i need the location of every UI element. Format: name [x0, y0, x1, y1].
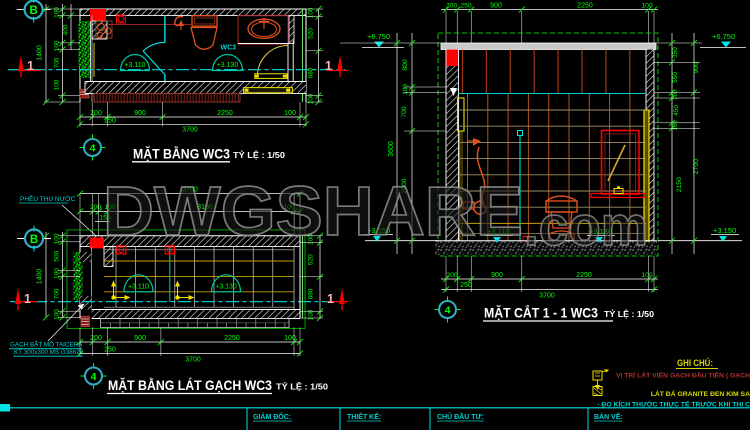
- svg-text:1: 1: [27, 59, 34, 73]
- svg-text:1: 1: [24, 292, 31, 306]
- svg-text:250: 250: [104, 117, 116, 124]
- svg-text:KT 300x300 MS G38628: KT 300x300 MS G38628: [14, 349, 84, 356]
- svg-text:100: 100: [54, 309, 61, 320]
- svg-text:+6.750: +6.750: [367, 32, 390, 41]
- svg-text:900: 900: [490, 3, 502, 10]
- svg-text:700: 700: [54, 57, 61, 68]
- svg-text:MẶT BẰNG LÁT GẠCH WC3: MẶT BẰNG LÁT GẠCH WC3: [108, 378, 272, 393]
- svg-text:+3.130: +3.130: [217, 62, 239, 69]
- svg-text:MẶT BẰNG WC3: MẶT BẰNG WC3: [133, 145, 230, 162]
- svg-text:200: 200: [90, 110, 102, 117]
- svg-text:900: 900: [491, 272, 503, 279]
- svg-text:TỶ LỆ : 1/50: TỶ LỆ : 1/50: [276, 381, 328, 392]
- svg-text:900: 900: [134, 110, 146, 117]
- svg-text:1400: 1400: [37, 269, 44, 285]
- svg-text:200: 200: [446, 272, 458, 279]
- svg-text:900: 900: [134, 335, 146, 342]
- svg-text:3700: 3700: [539, 293, 555, 300]
- svg-text:+6.750: +6.750: [712, 32, 735, 41]
- svg-text:200: 200: [90, 204, 102, 211]
- svg-text:700: 700: [54, 288, 61, 299]
- svg-text:DWGSHARE: DWGSHARE: [103, 172, 523, 250]
- svg-text:100: 100: [54, 7, 61, 18]
- svg-text:+3.110: +3.110: [128, 283, 149, 290]
- svg-text:+3.130: +3.130: [215, 283, 237, 290]
- svg-text:680: 680: [308, 67, 315, 78]
- svg-text:100: 100: [673, 89, 679, 100]
- svg-text:200: 200: [90, 335, 102, 342]
- svg-text:1400: 1400: [37, 45, 44, 61]
- svg-text:4: 4: [90, 143, 96, 155]
- svg-text:450: 450: [673, 105, 680, 116]
- svg-text:1: 1: [327, 292, 334, 306]
- svg-text:3700: 3700: [182, 127, 198, 134]
- svg-text:550: 550: [672, 72, 679, 83]
- svg-text:+3.110: +3.110: [124, 62, 145, 69]
- svg-text:3700: 3700: [185, 357, 201, 364]
- svg-text:B: B: [30, 234, 38, 246]
- svg-text:250: 250: [104, 347, 116, 354]
- svg-text:800: 800: [402, 59, 409, 71]
- svg-text:100: 100: [673, 120, 679, 131]
- svg-text:680: 680: [308, 288, 315, 299]
- svg-text:2250: 2250: [577, 3, 593, 10]
- svg-text:700: 700: [401, 106, 408, 118]
- svg-text:100: 100: [641, 272, 653, 279]
- svg-text:100: 100: [54, 233, 61, 244]
- svg-text:2250: 2250: [576, 272, 592, 279]
- svg-text:350: 350: [672, 47, 679, 58]
- svg-text:GẠCH BẮT MỖ TAICERA: GẠCH BẮT MỖ TAICERA: [10, 340, 83, 349]
- svg-text:100: 100: [54, 79, 61, 90]
- svg-text:.com: .com: [524, 194, 648, 257]
- svg-text:PHỄU THU NƯỚC: PHỄU THU NƯỚC: [20, 194, 76, 203]
- svg-text:100: 100: [284, 110, 296, 117]
- svg-text:B: B: [29, 5, 37, 17]
- svg-text:MẶT CẮT 1 - 1 WC3: MẶT CẮT 1 - 1 WC3: [484, 304, 598, 321]
- svg-text:3600: 3600: [388, 141, 395, 157]
- svg-text:2250: 2250: [224, 335, 240, 342]
- svg-text:100: 100: [308, 309, 315, 320]
- svg-text:TỶ LỆ : 1/50: TỶ LỆ : 1/50: [604, 308, 654, 319]
- svg-text:GHI CHÚ:: GHI CHÚ:: [677, 357, 713, 368]
- svg-text:250: 250: [460, 282, 472, 289]
- svg-text:1: 1: [325, 59, 332, 73]
- svg-text:900: 900: [693, 62, 700, 74]
- svg-text:4: 4: [91, 371, 97, 383]
- svg-text:100: 100: [308, 93, 315, 104]
- svg-text:100: 100: [54, 268, 61, 279]
- svg-text:2150: 2150: [676, 177, 683, 192]
- svg-text:100: 100: [641, 3, 653, 10]
- svg-text:LÁT ĐÁ GRANITE ĐEN KIM SA: LÁT ĐÁ GRANITE ĐEN KIM SA: [651, 389, 750, 398]
- svg-text:520: 520: [308, 254, 315, 265]
- svg-text:250: 250: [460, 3, 472, 10]
- svg-text:TỶ LỆ : 1/50: TỶ LỆ : 1/50: [233, 149, 285, 160]
- svg-text:BẢN VẼ:: BẢN VẼ:: [594, 412, 623, 421]
- svg-text:520: 520: [308, 28, 315, 39]
- svg-text:2250: 2250: [217, 110, 233, 117]
- svg-text:200: 200: [446, 3, 458, 10]
- svg-text:100: 100: [402, 84, 409, 95]
- svg-text:WC3: WC3: [221, 45, 237, 52]
- svg-text:500: 500: [54, 250, 61, 261]
- svg-text:400: 400: [63, 24, 70, 35]
- svg-text:2700: 2700: [693, 159, 700, 175]
- svg-text:+3.150: +3.150: [713, 226, 736, 235]
- svg-text:4: 4: [445, 305, 451, 317]
